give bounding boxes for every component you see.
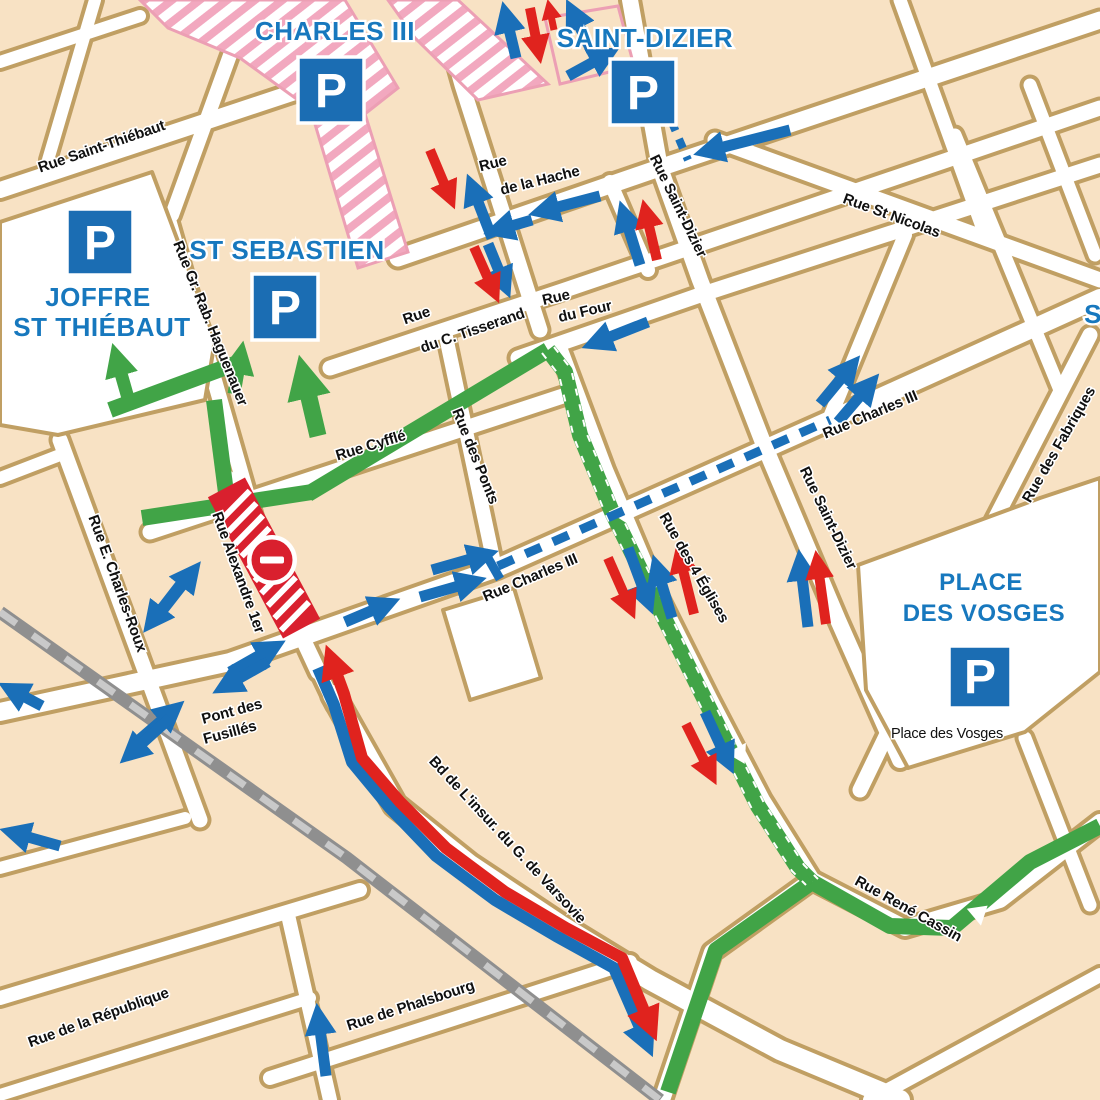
district-label-place: PLACE bbox=[939, 569, 1023, 596]
map-canvas: Rue Saint-Thiébaut Rue de la Hache Rue S… bbox=[0, 0, 1100, 1100]
parking-icon-place-des-vosges: P bbox=[949, 646, 1011, 708]
district-label-saint-dizier: SAINT-DIZIER bbox=[557, 23, 733, 53]
district-label-charles-iii: CHARLES III bbox=[255, 16, 415, 46]
parking-icon-saint-dizier: P bbox=[610, 59, 676, 125]
parking-icon-joffre: P bbox=[67, 209, 133, 275]
svg-text:P: P bbox=[315, 65, 347, 118]
no-entry-icon bbox=[247, 535, 297, 585]
svg-text:P: P bbox=[84, 217, 116, 270]
street-label-place-des-vosges: Place des Vosges bbox=[891, 726, 1003, 742]
parking-icon-st-sebastien: P bbox=[252, 274, 318, 340]
city-map: Rue Saint-Thiébaut Rue de la Hache Rue S… bbox=[0, 0, 1100, 1100]
district-label-edge-partial: S bbox=[1084, 299, 1100, 329]
svg-text:P: P bbox=[269, 282, 301, 335]
parking-icon-charles-iii: P bbox=[298, 57, 364, 123]
district-label-st-sebastien: ST SEBASTIEN bbox=[189, 235, 384, 265]
district-label-des-vosges: DES VOSGES bbox=[903, 600, 1065, 627]
district-label-st-thiebaut: ST THIÉBAUT bbox=[13, 312, 190, 342]
svg-text:P: P bbox=[964, 651, 996, 704]
district-label-joffre: JOFFRE bbox=[45, 282, 151, 312]
svg-text:P: P bbox=[627, 67, 659, 120]
